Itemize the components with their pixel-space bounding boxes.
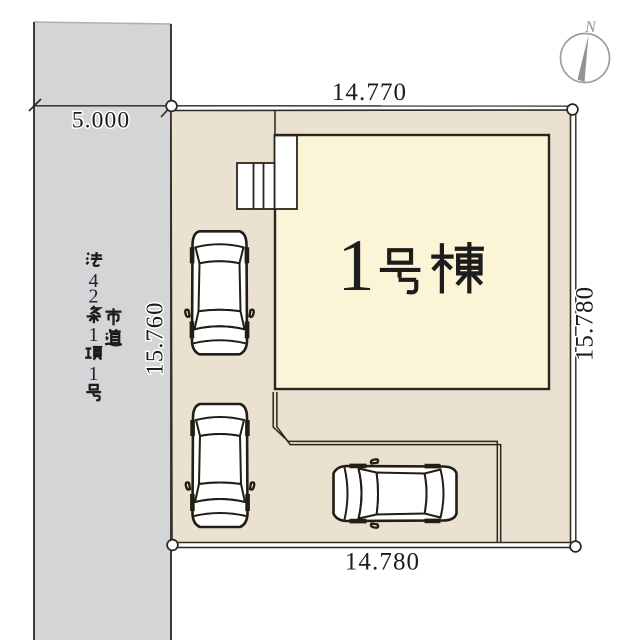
svg-text:N: N xyxy=(584,19,597,36)
svg-text:1: 1 xyxy=(89,324,99,346)
svg-text:2: 2 xyxy=(89,286,99,308)
svg-text:15.780: 15.780 xyxy=(572,286,599,361)
svg-text:14.770: 14.770 xyxy=(332,79,407,106)
svg-text:5.000: 5.000 xyxy=(72,108,130,134)
svg-text:1: 1 xyxy=(338,225,375,307)
svg-text:15.760: 15.760 xyxy=(142,302,169,376)
svg-text:1: 1 xyxy=(89,363,99,385)
svg-text:14.780: 14.780 xyxy=(345,549,420,576)
